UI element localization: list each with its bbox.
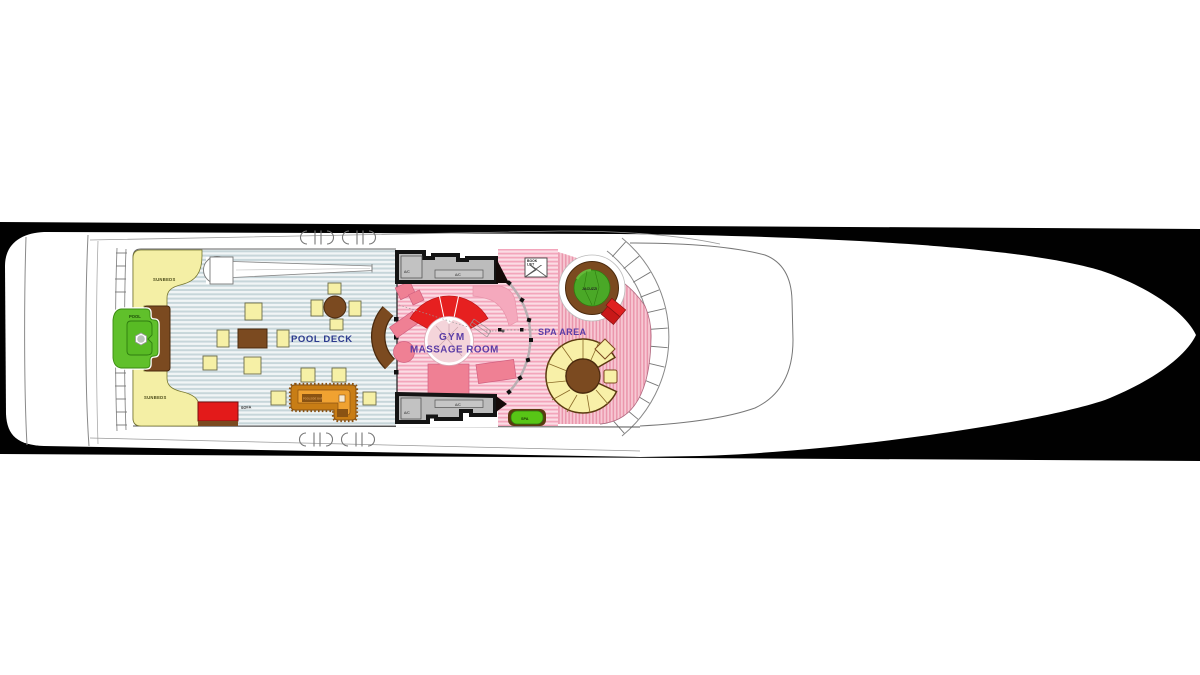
svg-text:A/C: A/C [404, 411, 410, 415]
svg-text:POOL DECK: POOL DECK [291, 334, 353, 345]
svg-text:LIFT: LIFT [527, 263, 535, 267]
svg-text:GYM: GYM [439, 332, 465, 343]
svg-text:A/C: A/C [455, 403, 461, 407]
svg-text:SPA: SPA [521, 417, 529, 421]
svg-text:A/C: A/C [404, 270, 410, 274]
svg-text:POOLSIDE BAR: POOLSIDE BAR [303, 397, 323, 401]
svg-text:MASSAGE ROOM: MASSAGE ROOM [410, 345, 499, 356]
svg-text:SPA AREA: SPA AREA [538, 327, 586, 337]
svg-text:SOFA: SOFA [241, 405, 252, 410]
svg-text:SUNBEDS: SUNBEDS [144, 395, 167, 400]
svg-text:JACUZZI: JACUZZI [582, 287, 597, 291]
svg-text:POOL: POOL [129, 314, 141, 319]
svg-text:A/C: A/C [455, 273, 461, 277]
svg-text:SUNBEDS: SUNBEDS [153, 277, 176, 282]
